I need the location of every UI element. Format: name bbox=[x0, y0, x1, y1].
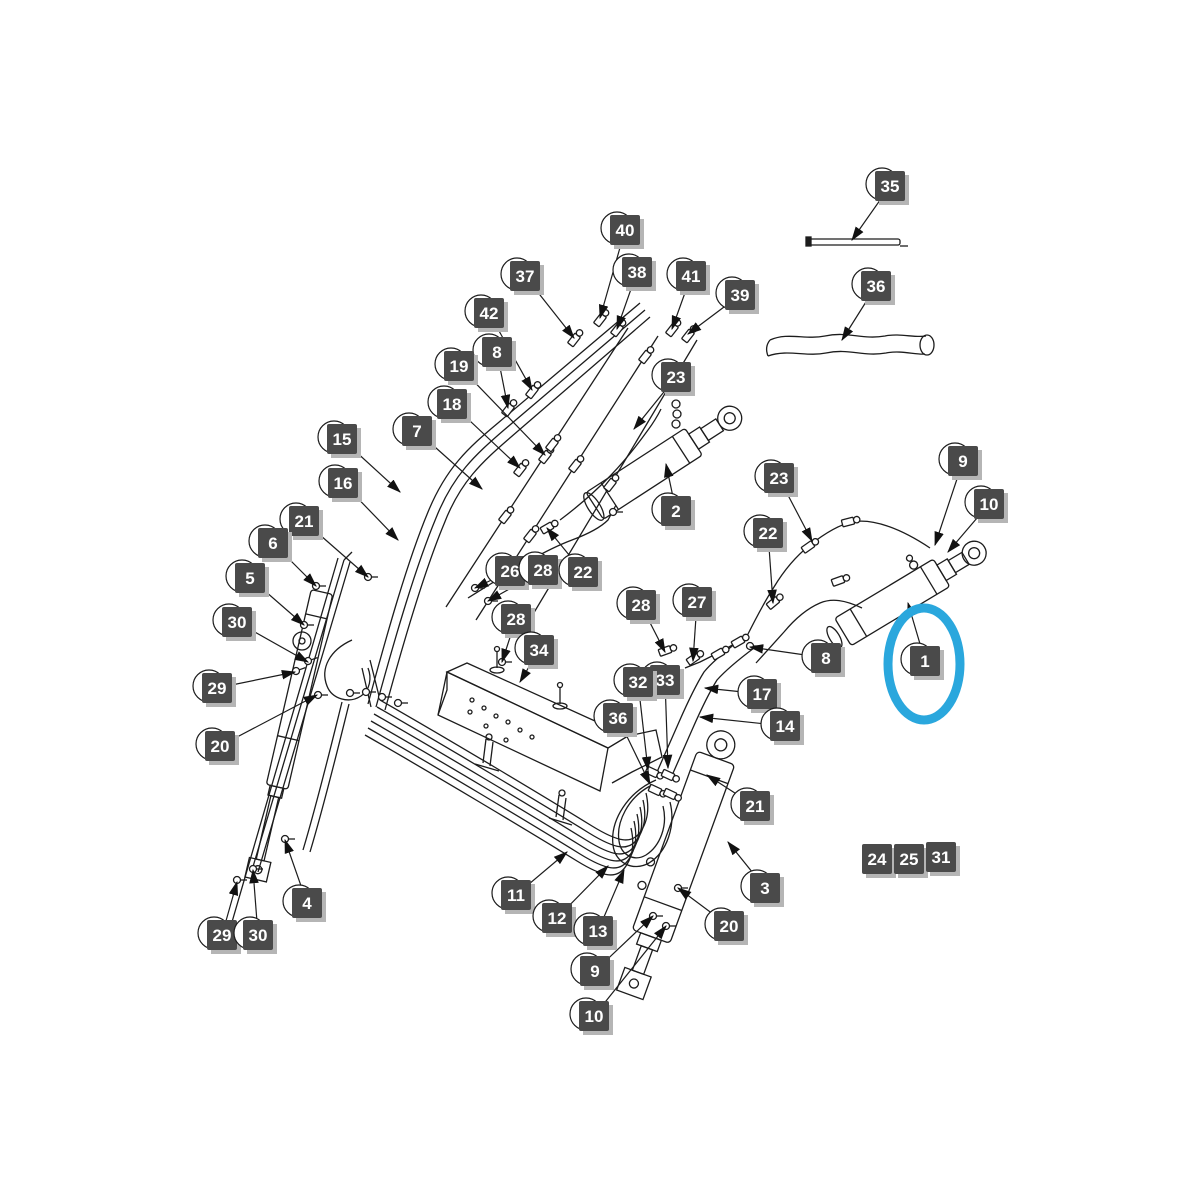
callout-number: 26 bbox=[501, 562, 520, 581]
callout-number: 1 bbox=[920, 652, 929, 671]
callout-30: 30 bbox=[213, 604, 256, 641]
callout-number: 41 bbox=[682, 267, 701, 286]
callout-40: 40 bbox=[601, 212, 644, 249]
callout-22: 22 bbox=[559, 554, 602, 591]
callout-14: 14 bbox=[761, 708, 804, 745]
callout-number: 21 bbox=[746, 797, 765, 816]
callout-number: 23 bbox=[667, 368, 686, 387]
callout-number: 33 bbox=[656, 671, 675, 690]
callout-number: 28 bbox=[507, 610, 526, 629]
callout-number: 18 bbox=[443, 395, 462, 414]
parts-diagram-canvas: 3540383741363942819231871592316102212262… bbox=[0, 0, 1200, 1200]
callout-4: 4 bbox=[283, 885, 326, 922]
callout-number: 40 bbox=[616, 221, 635, 240]
callout-17: 17 bbox=[738, 676, 781, 713]
diagram-svg: 3540383741363942819231871592316102212262… bbox=[0, 0, 1200, 1200]
callout-number: 15 bbox=[333, 430, 352, 449]
callout-29: 29 bbox=[193, 670, 236, 707]
diagram-line-art bbox=[232, 237, 993, 1002]
callout-32: 32 bbox=[614, 664, 657, 701]
callout-number: 35 bbox=[881, 177, 900, 196]
callout-number: 30 bbox=[228, 613, 247, 632]
callout-number: 12 bbox=[548, 909, 567, 928]
callout-number: 13 bbox=[589, 922, 608, 941]
callout-labels-layer: 3540383741363942819231871592316102212262… bbox=[193, 168, 1008, 1035]
callout-number: 10 bbox=[585, 1007, 604, 1026]
callout-number: 7 bbox=[412, 422, 421, 441]
callout-number: 29 bbox=[208, 679, 227, 698]
callout-number: 5 bbox=[245, 569, 254, 588]
callout-number: 14 bbox=[776, 717, 795, 736]
callout-number: 20 bbox=[720, 917, 739, 936]
callout-36: 36 bbox=[852, 268, 895, 305]
callout-24: 24 bbox=[862, 844, 896, 878]
callout-number: 23 bbox=[770, 469, 789, 488]
callout-number: 16 bbox=[334, 474, 353, 493]
callout-number: 31 bbox=[932, 848, 951, 867]
callout-6: 6 bbox=[249, 525, 292, 562]
callout-number: 19 bbox=[450, 357, 469, 376]
callout-25: 25 bbox=[894, 844, 928, 878]
callout-number: 3 bbox=[760, 879, 769, 898]
callout-number: 38 bbox=[628, 263, 647, 282]
callout-9: 9 bbox=[939, 443, 982, 480]
callout-21: 21 bbox=[731, 788, 774, 825]
callout-8: 8 bbox=[473, 334, 516, 371]
cylinder-3-part bbox=[602, 721, 745, 1001]
callout-41: 41 bbox=[667, 258, 710, 295]
callout-20: 20 bbox=[196, 728, 239, 765]
callout-number: 9 bbox=[590, 962, 599, 981]
callout-42: 42 bbox=[465, 295, 508, 332]
callout-number: 28 bbox=[632, 596, 651, 615]
callout-38: 38 bbox=[613, 254, 656, 291]
callout-number: 20 bbox=[211, 737, 230, 756]
rod-35-part bbox=[806, 237, 908, 246]
callout-23: 23 bbox=[755, 460, 798, 497]
callout-number: 22 bbox=[759, 524, 778, 543]
callout-number: 28 bbox=[534, 561, 553, 580]
callout-number: 6 bbox=[268, 534, 277, 553]
callout-number: 32 bbox=[629, 673, 648, 692]
callout-35: 35 bbox=[866, 168, 909, 205]
callout-31: 31 bbox=[926, 842, 960, 876]
callout-number: 21 bbox=[295, 512, 314, 531]
callout-27: 27 bbox=[673, 584, 716, 621]
callout-number: 30 bbox=[249, 926, 268, 945]
callout-5: 5 bbox=[226, 560, 269, 597]
callout-number: 27 bbox=[688, 593, 707, 612]
callout-number: 4 bbox=[302, 894, 312, 913]
callout-22: 22 bbox=[744, 515, 787, 552]
callout-number: 25 bbox=[900, 850, 919, 869]
callout-23: 23 bbox=[652, 359, 695, 396]
callout-2: 2 bbox=[652, 493, 695, 530]
callout-15: 15 bbox=[318, 421, 361, 458]
callout-number: 17 bbox=[753, 685, 772, 704]
callout-number: 34 bbox=[530, 641, 549, 660]
callout-19: 19 bbox=[435, 348, 478, 385]
callout-3: 3 bbox=[741, 870, 784, 907]
callout-9: 9 bbox=[571, 953, 614, 990]
callout-number: 42 bbox=[480, 304, 499, 323]
callout-8: 8 bbox=[802, 640, 845, 677]
callout-7: 7 bbox=[393, 413, 436, 450]
callout-12: 12 bbox=[533, 900, 576, 937]
callout-13: 13 bbox=[574, 913, 617, 950]
callout-34: 34 bbox=[515, 632, 558, 669]
callout-37: 37 bbox=[501, 258, 544, 295]
callout-16: 16 bbox=[319, 465, 362, 502]
callout-20: 20 bbox=[705, 908, 748, 945]
callout-number: 24 bbox=[868, 850, 887, 869]
callout-number: 29 bbox=[213, 926, 232, 945]
callout-10: 10 bbox=[965, 486, 1008, 523]
callout-number: 10 bbox=[980, 495, 999, 514]
callout-28: 28 bbox=[617, 587, 660, 624]
callout-number: 8 bbox=[492, 343, 501, 362]
callout-number: 2 bbox=[671, 502, 680, 521]
cylinder-1-part bbox=[814, 520, 993, 654]
hose-36-part bbox=[767, 334, 934, 356]
callout-number: 36 bbox=[609, 709, 628, 728]
callout-number: 37 bbox=[516, 267, 535, 286]
callout-number: 8 bbox=[821, 649, 830, 668]
callout-11: 11 bbox=[492, 877, 535, 914]
callout-36: 36 bbox=[594, 700, 637, 737]
callout-number: 9 bbox=[958, 452, 967, 471]
callout-10: 10 bbox=[570, 998, 613, 1035]
callout-18: 18 bbox=[428, 386, 471, 423]
callout-number: 11 bbox=[507, 886, 525, 905]
callout-number: 39 bbox=[731, 286, 750, 305]
callout-1: 1 bbox=[901, 643, 944, 680]
callout-number: 22 bbox=[574, 563, 593, 582]
callout-number: 36 bbox=[867, 277, 886, 296]
